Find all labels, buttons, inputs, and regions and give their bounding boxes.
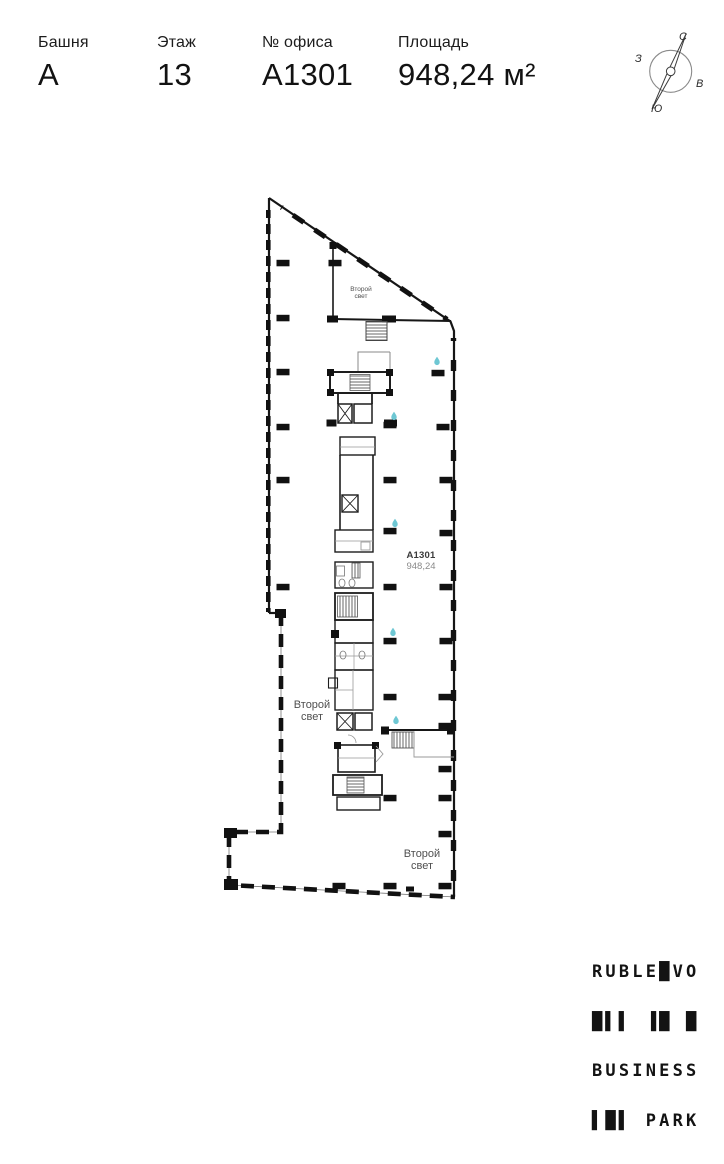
droplet-icon — [391, 412, 396, 420]
upper-annex-partition — [358, 352, 390, 371]
logo-row-1: RUBLE█VO — [592, 964, 699, 981]
rublevo-business-park-logo: RUBLE█VO █▌▌ ▐█ █ BUSINESS ▌█▌ PARK — [592, 931, 699, 1162]
floor-plan — [0, 0, 724, 1024]
droplet-icon — [390, 628, 395, 636]
floorplan-page: Башня А Этаж 13 № офиса А1301 Площадь 94… — [0, 0, 724, 1024]
bottom-wing — [376, 727, 454, 763]
stair-core — [338, 596, 358, 617]
elevator-icon — [338, 404, 352, 423]
void-label-top: Второй свет — [350, 286, 372, 300]
void-label-bottom: Второй свет — [404, 849, 440, 873]
droplet-icon — [393, 716, 398, 724]
logo-row-3: BUSINESS — [592, 1063, 699, 1080]
droplet-icon — [434, 357, 439, 365]
unit-label: А1301 948,24 — [406, 551, 435, 573]
unit-area: 948,24 — [406, 562, 435, 572]
droplet-icon — [392, 519, 397, 527]
stair-bottom — [392, 732, 414, 748]
elevator-icon — [342, 495, 358, 512]
stair-lower — [347, 777, 364, 793]
stair-top — [366, 322, 387, 341]
droplet-icons — [390, 357, 439, 724]
logo-row-2: █▌▌ ▐█ █ — [592, 1014, 699, 1031]
unit-code: А1301 — [406, 551, 435, 561]
elevator-icon — [337, 713, 353, 730]
void-label-left: Второй свет — [294, 700, 330, 724]
logo-row-4: ▌█▌ PARK — [592, 1113, 699, 1130]
